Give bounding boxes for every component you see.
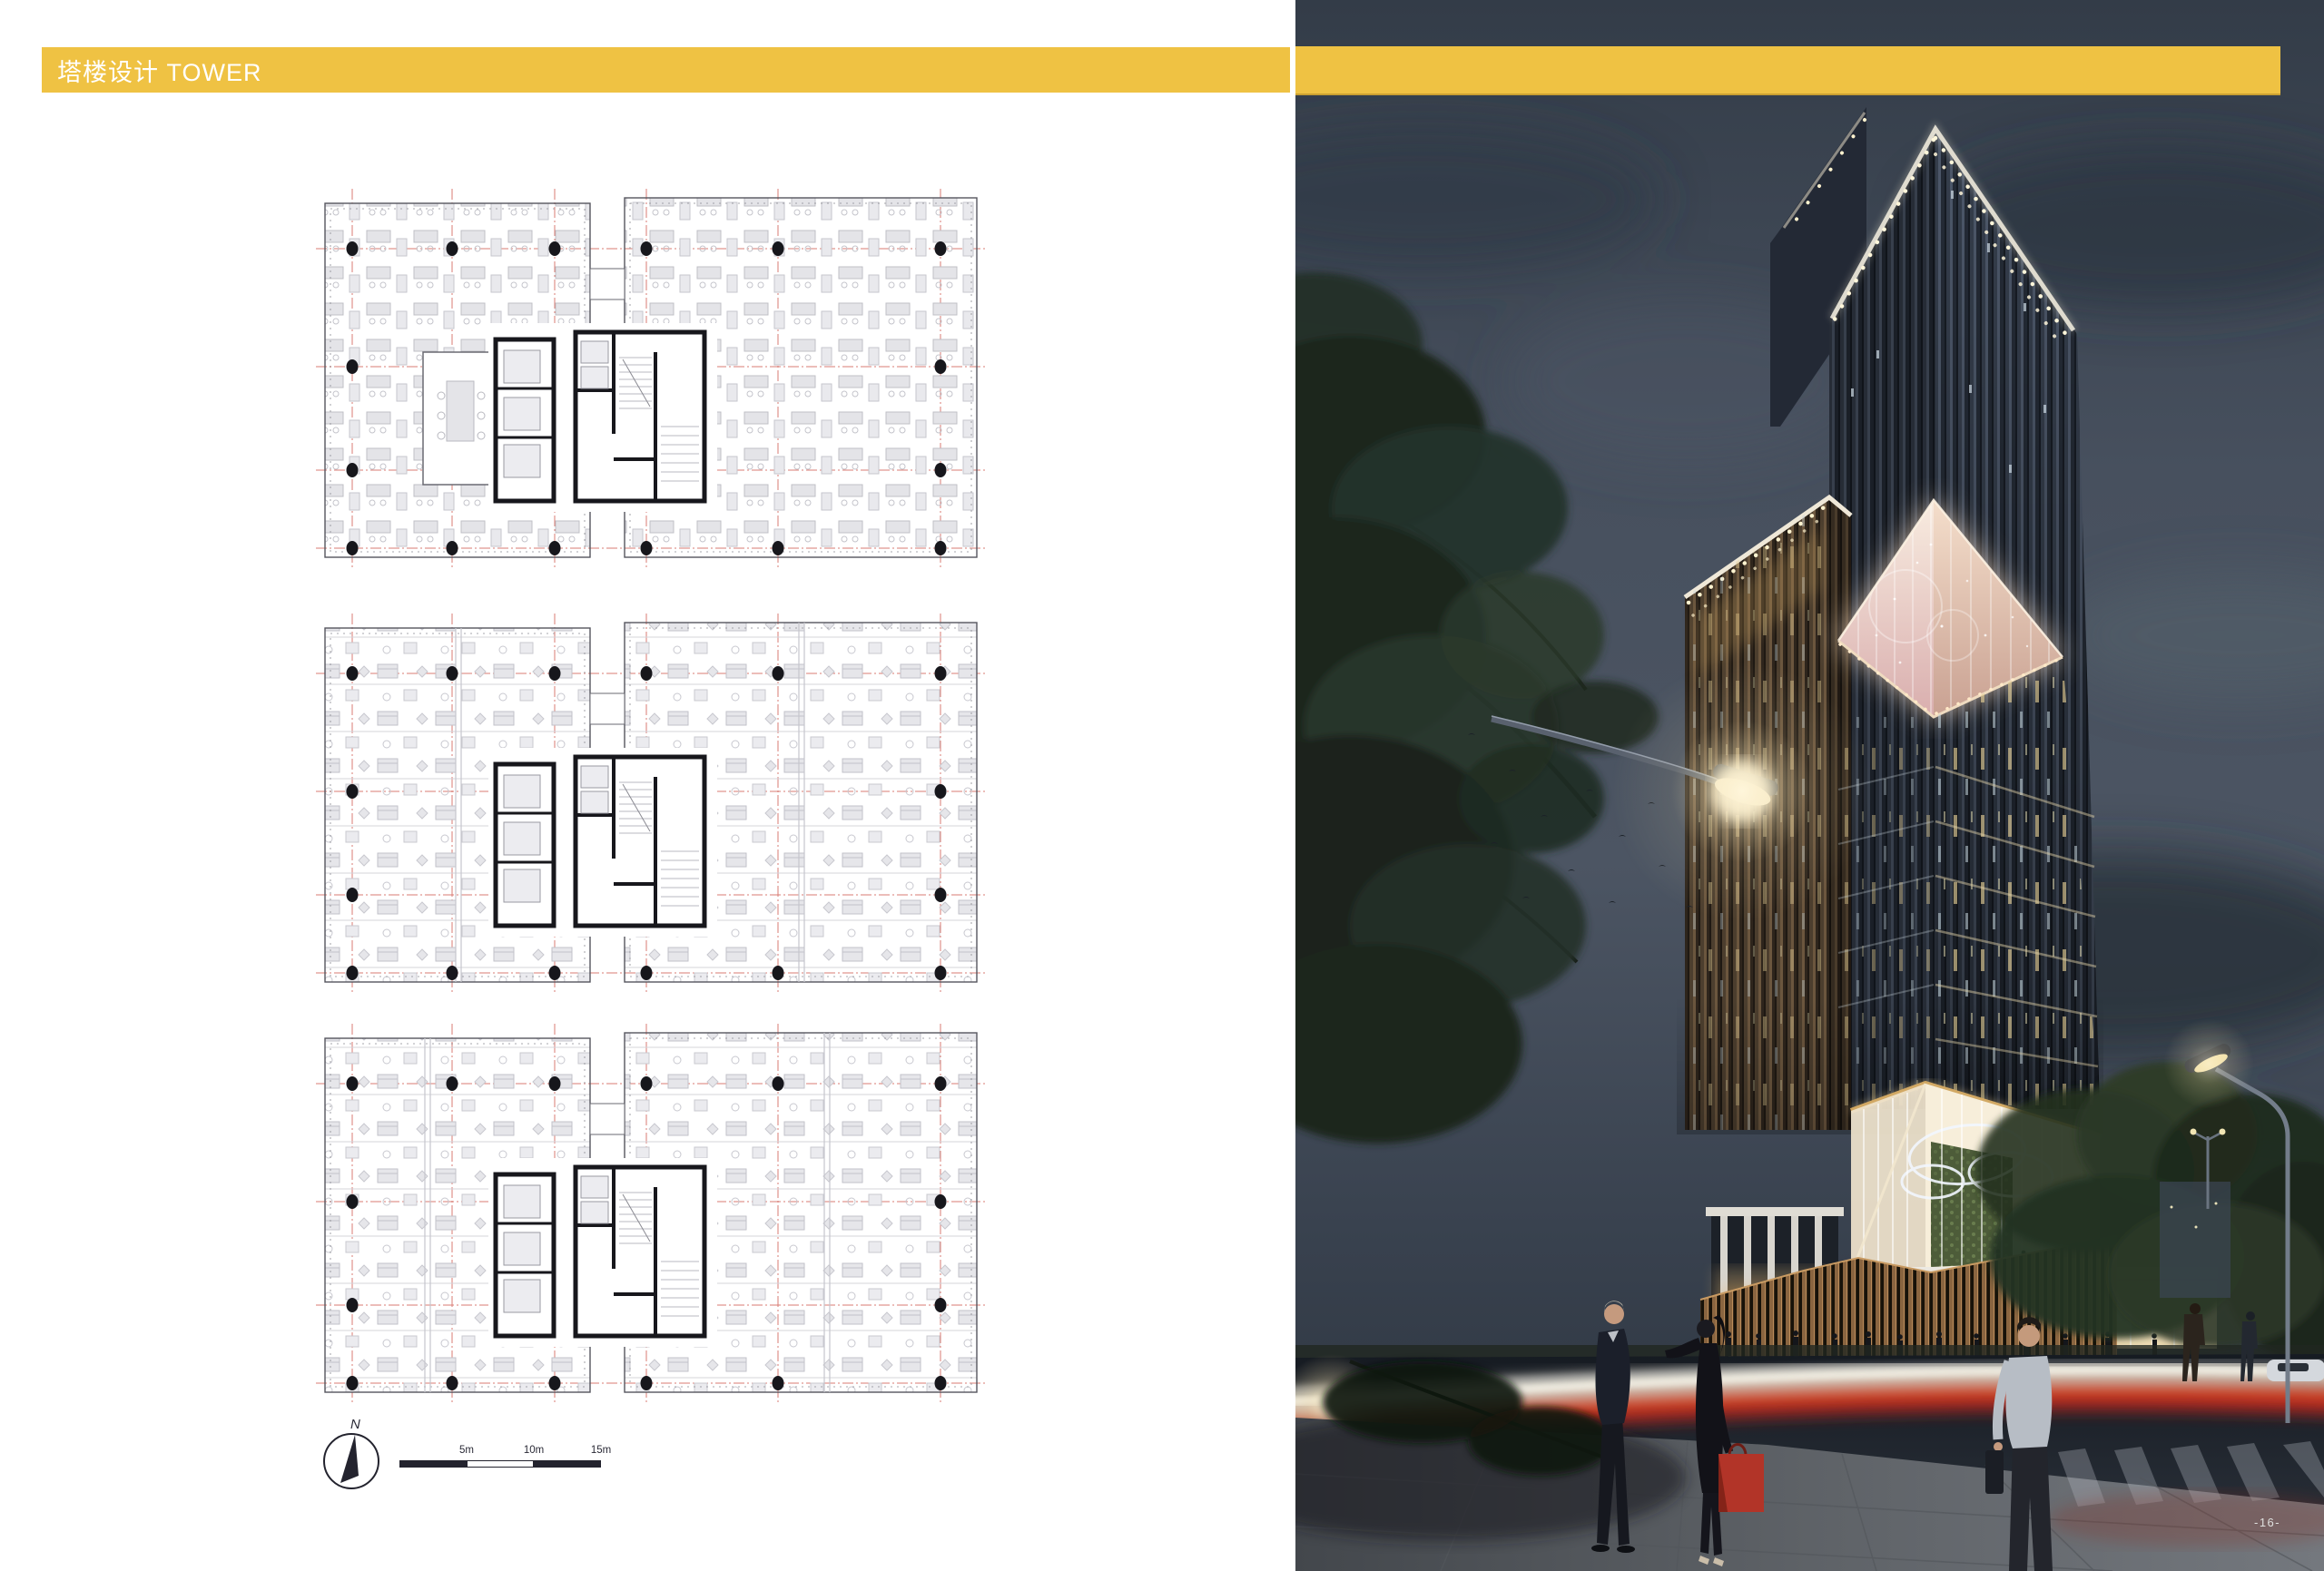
north-arrow-icon: N — [318, 1416, 390, 1494]
north-label: N — [350, 1417, 360, 1432]
scale-label-5m: 5m — [459, 1445, 474, 1456]
meeting-room — [423, 352, 499, 485]
floor-plan-hotel-level — [316, 614, 988, 995]
page-number: -16- — [2254, 1516, 2280, 1529]
portfolio-page: N 5m 10m 15m — [0, 0, 2324, 1571]
scale-bar: 5m 10m 15m — [399, 1445, 605, 1468]
title-bar-overlay — [1295, 46, 2280, 95]
service-core — [496, 1167, 704, 1336]
floor-plan-office-level — [316, 189, 988, 570]
tower-night-render: -16- — [1295, 0, 2324, 1571]
floor-plan-apartment-level — [316, 1024, 988, 1405]
scale-segment — [399, 1460, 467, 1468]
service-core — [496, 332, 704, 501]
scale-label-10m: 10m — [524, 1445, 544, 1456]
page-title: 塔楼设计 TOWER — [42, 53, 262, 88]
title-bar: 塔楼设计 TOWER — [42, 47, 1290, 93]
scale-segment — [534, 1460, 601, 1468]
service-core — [496, 757, 704, 926]
scale-segment — [467, 1460, 534, 1468]
scale-label-15m: 15m — [591, 1445, 611, 1456]
